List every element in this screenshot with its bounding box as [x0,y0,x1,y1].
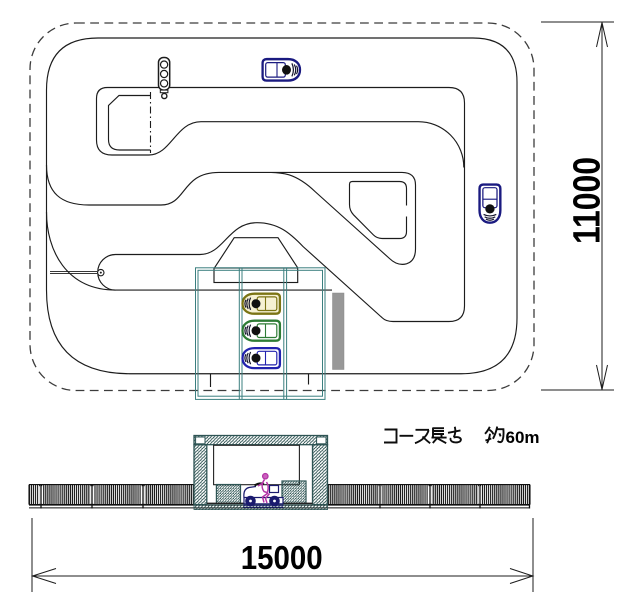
svg-text:60m: 60m [506,428,540,447]
svg-text:11000: 11000 [567,157,609,244]
svg-text:15000: 15000 [241,539,323,576]
